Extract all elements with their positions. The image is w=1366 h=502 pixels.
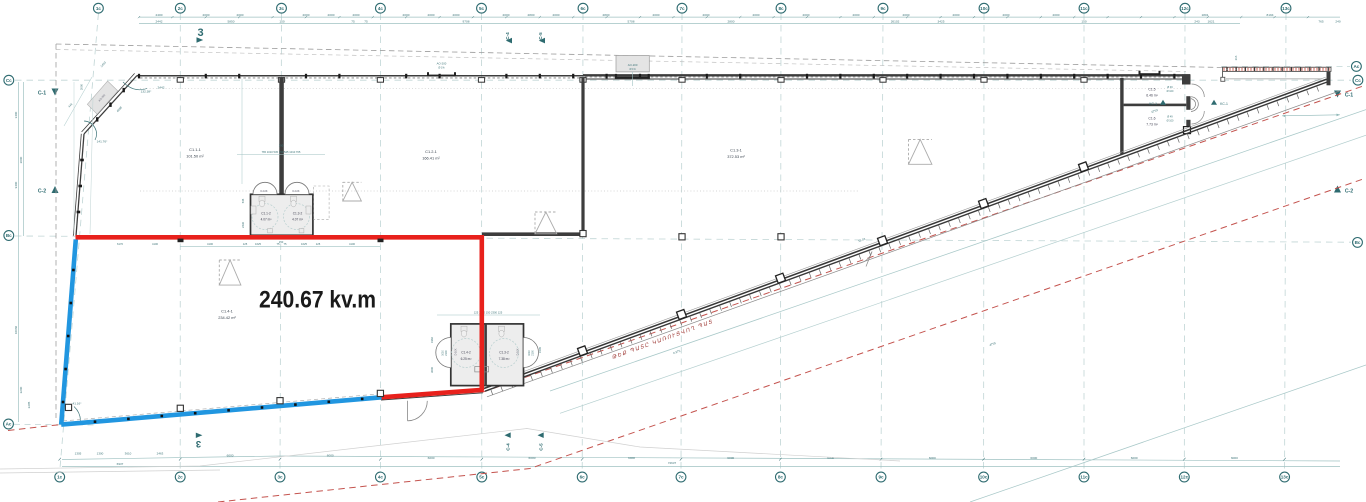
svg-text:3425: 3425 (938, 19, 945, 23)
svg-text:2000: 2000 (303, 13, 310, 17)
svg-text:9400: 9400 (14, 181, 18, 188)
svg-text:9c: 9c (880, 6, 886, 11)
svg-text:75: 75 (364, 19, 368, 23)
svg-text:D-10K: D-10K (260, 190, 267, 193)
svg-text:C-1: C-1 (1345, 93, 1353, 99)
svg-text:3: 3 (196, 438, 201, 449)
svg-text:1c: 1c (57, 475, 63, 480)
svg-text:4100: 4100 (207, 242, 213, 246)
svg-text:Ac: Ac (1353, 64, 1359, 69)
svg-text:C1.3-2: C1.3-2 (499, 351, 509, 355)
svg-text:2442: 2442 (156, 19, 163, 23)
svg-text:2000: 2000 (353, 13, 360, 17)
svg-text:2400: 2400 (156, 13, 163, 17)
svg-text:765: 765 (1318, 19, 1323, 23)
svg-text:D-10K: D-10K (455, 348, 458, 355)
svg-text:Cc: Cc (6, 78, 12, 83)
svg-text:1505: 1505 (538, 347, 542, 353)
svg-text:Ø 100: Ø 100 (1167, 120, 1174, 123)
svg-text:Cc: Cc (1355, 78, 1361, 83)
svg-text:6937: 6937 (117, 462, 124, 466)
svg-text:1305: 1305 (75, 452, 82, 456)
svg-text:D-10K: D-10K (517, 348, 520, 355)
svg-text:2100: 2100 (532, 350, 535, 356)
svg-text:3000: 3000 (430, 367, 434, 373)
svg-text:C-2: C-2 (1345, 189, 1353, 195)
svg-text:2c: 2c (178, 475, 184, 480)
svg-text:2000: 2000 (1003, 13, 1010, 17)
svg-text:C-4: C-4 (506, 443, 511, 451)
svg-text:C1.2-1: C1.2-1 (425, 149, 437, 154)
svg-text:5c: 5c (479, 475, 485, 480)
svg-text:2463: 2463 (157, 452, 164, 456)
svg-text:C-2: C-2 (38, 189, 46, 195)
svg-text:75: 75 (351, 19, 355, 23)
svg-text:234.42 m²: 234.42 m² (218, 315, 236, 320)
svg-text:2800: 2800 (603, 13, 610, 17)
svg-text:5708: 5708 (628, 19, 635, 23)
svg-text:6.25 m²: 6.25 m² (461, 357, 472, 361)
svg-text:216: 216 (1234, 55, 1238, 60)
svg-text:2000: 2000 (853, 13, 860, 17)
svg-text:6000: 6000 (929, 456, 936, 460)
svg-text:7c: 7c (679, 6, 685, 11)
svg-text:2205: 2205 (27, 401, 31, 408)
svg-text:2800: 2800 (528, 13, 535, 17)
svg-text:1625: 1625 (255, 242, 261, 246)
svg-text:1621: 1621 (1208, 19, 1215, 23)
svg-text:3400: 3400 (14, 111, 18, 118)
svg-text:Bc: Bc (1355, 240, 1361, 245)
svg-text:4c: 4c (378, 475, 384, 480)
svg-text:2000: 2000 (803, 13, 810, 17)
svg-text:150: 150 (279, 19, 284, 23)
svg-text:150: 150 (1081, 19, 1086, 23)
svg-text:240.67 kv.m: 240.67 kv.m (259, 287, 376, 314)
svg-text:2442: 2442 (158, 86, 165, 90)
svg-text:C1.5: C1.5 (1148, 88, 1155, 92)
svg-text:372.53 m²: 372.53 m² (727, 154, 745, 159)
svg-text:4.07 m²: 4.07 m² (292, 218, 303, 222)
svg-text:6000: 6000 (827, 456, 834, 460)
svg-text:C-1: C-1 (38, 91, 46, 97)
svg-text:6000: 6000 (1131, 456, 1138, 460)
svg-text:11c: 11c (1080, 475, 1088, 480)
svg-text:5c: 5c (479, 6, 485, 11)
svg-text:6170: 6170 (117, 242, 123, 246)
svg-text:2000: 2000 (653, 13, 660, 17)
svg-text:C1.4-2: C1.4-2 (461, 351, 471, 355)
svg-text:Ø 1%: Ø 1% (629, 68, 636, 71)
svg-text:7.73 m²: 7.73 m² (1146, 123, 1158, 127)
svg-text:C1.3-2: C1.3-2 (293, 212, 303, 216)
svg-text:6000: 6000 (428, 456, 435, 460)
svg-text:2000: 2000 (80, 83, 84, 90)
svg-text:2000: 2000 (1053, 13, 1060, 17)
svg-text:2000: 2000 (953, 13, 960, 17)
svg-text:125: 125 (243, 242, 248, 246)
svg-text:75: 75 (284, 242, 287, 246)
svg-text:10060: 10060 (14, 325, 18, 334)
svg-text:2000: 2000 (328, 13, 335, 17)
svg-text:12c: 12c (1181, 6, 1189, 11)
svg-text:141.76°: 141.76° (97, 140, 108, 144)
svg-text:125 1750 150 2300 125: 125 1750 150 2300 125 (474, 310, 503, 314)
svg-text:125: 125 (316, 242, 321, 246)
svg-text:Ø 49: Ø 49 (1167, 116, 1173, 119)
svg-text:8194: 8194 (1267, 13, 1274, 17)
svg-text:2000: 2000 (403, 13, 410, 17)
svg-text:6000: 6000 (1030, 456, 1037, 460)
svg-text:1c: 1c (96, 6, 102, 11)
svg-text:3c: 3c (277, 475, 283, 480)
svg-text:243: 243 (1194, 19, 1199, 23)
svg-text:C1.3-1: C1.3-1 (730, 148, 742, 153)
svg-text:72637: 72637 (668, 461, 677, 465)
svg-text:Ac: Ac (6, 422, 12, 427)
svg-text:6c: 6c (580, 6, 586, 11)
svg-text:2000: 2000 (753, 13, 760, 17)
svg-text:2100: 2100 (445, 350, 448, 356)
svg-text:1300: 1300 (97, 452, 104, 456)
svg-text:AO-200: AO-200 (628, 63, 638, 67)
svg-text:C1.4-1: C1.4-1 (221, 309, 233, 314)
svg-text:2800: 2800 (728, 19, 735, 23)
svg-text:6000: 6000 (227, 454, 234, 458)
svg-text:6000: 6000 (529, 456, 536, 460)
svg-text:2200: 2200 (19, 386, 23, 393)
svg-text:7c: 7c (678, 475, 684, 480)
svg-text:765 1010 545 150 545 1010: 765 1010 545 150 545 1010 765 (262, 150, 301, 154)
svg-text:C1.6: C1.6 (1148, 117, 1155, 121)
svg-text:6000: 6000 (628, 456, 635, 460)
svg-text:41.16°: 41.16° (73, 402, 83, 406)
svg-text:9c: 9c (878, 475, 884, 480)
svg-text:D-10K: D-10K (292, 190, 299, 193)
svg-text:KC-1: KC-1 (1149, 102, 1157, 106)
svg-text:2000: 2000 (428, 13, 435, 17)
svg-text:2000: 2000 (19, 156, 23, 163)
svg-text:132.38°: 132.38° (141, 90, 152, 94)
svg-text:7.38 m²: 7.38 m² (499, 357, 510, 361)
svg-text:10c: 10c (980, 475, 988, 480)
svg-text:3610: 3610 (125, 452, 132, 456)
svg-text:101.50 m²: 101.50 m² (186, 154, 204, 159)
svg-text:C-5: C-5 (539, 443, 544, 451)
svg-text:4.07 m²: 4.07 m² (261, 218, 272, 222)
svg-text:8c: 8c (778, 475, 784, 480)
svg-text:2000: 2000 (703, 13, 710, 17)
svg-text:3: 3 (197, 27, 203, 39)
svg-text:Bc: Bc (6, 233, 12, 238)
svg-text:166.41 m²: 166.41 m² (422, 155, 440, 160)
svg-text:2000: 2000 (453, 13, 460, 17)
svg-text:AO-200: AO-200 (437, 62, 447, 66)
svg-text:C1.1-2: C1.1-2 (261, 212, 271, 216)
svg-text:4100: 4100 (349, 242, 355, 246)
svg-text:13c: 13c (1281, 475, 1289, 480)
svg-text:150: 150 (279, 240, 284, 244)
svg-text:6c: 6c (580, 475, 586, 480)
svg-text:11c: 11c (1080, 6, 1088, 11)
svg-text:2c: 2c (178, 6, 184, 11)
svg-text:10c: 10c (980, 6, 988, 11)
svg-text:26102: 26102 (891, 19, 900, 23)
svg-text:5850: 5850 (228, 19, 235, 23)
svg-text:2000: 2000 (203, 13, 210, 17)
svg-text:9708: 9708 (463, 19, 470, 23)
svg-text:1625: 1625 (301, 242, 307, 246)
svg-text:6000: 6000 (727, 456, 734, 460)
svg-text:12c: 12c (1180, 475, 1188, 480)
svg-text:6.46 m²: 6.46 m² (1146, 94, 1158, 98)
svg-text:Ø 49: Ø 49 (1167, 86, 1173, 89)
svg-text:1982: 1982 (430, 337, 434, 343)
svg-text:4100: 4100 (152, 242, 158, 246)
svg-text:2000: 2000 (553, 13, 560, 17)
svg-text:KC-1: KC-1 (1220, 102, 1228, 106)
svg-text:C-4: C-4 (505, 32, 510, 40)
svg-text:C-5: C-5 (538, 32, 543, 40)
svg-text:2000: 2000 (903, 13, 910, 17)
svg-text:6000: 6000 (1231, 456, 1238, 460)
svg-text:Ø 1%: Ø 1% (438, 66, 445, 69)
svg-text:8c: 8c (778, 6, 784, 11)
svg-text:3c: 3c (279, 6, 285, 11)
svg-text:Ø 100: Ø 100 (1167, 90, 1174, 93)
svg-text:240: 240 (1335, 19, 1340, 23)
svg-text:6000: 6000 (327, 454, 334, 458)
svg-text:1801: 1801 (1202, 13, 1209, 17)
svg-text:545: 545 (241, 198, 245, 203)
svg-text:13c: 13c (1282, 6, 1290, 11)
svg-text:4c: 4c (378, 6, 384, 11)
svg-text:2000: 2000 (503, 13, 510, 17)
svg-text:C1.1-1: C1.1-1 (189, 147, 201, 152)
svg-text:190: 190 (279, 144, 284, 148)
svg-text:2000: 2000 (237, 13, 244, 17)
svg-text:2430: 2430 (241, 222, 245, 228)
